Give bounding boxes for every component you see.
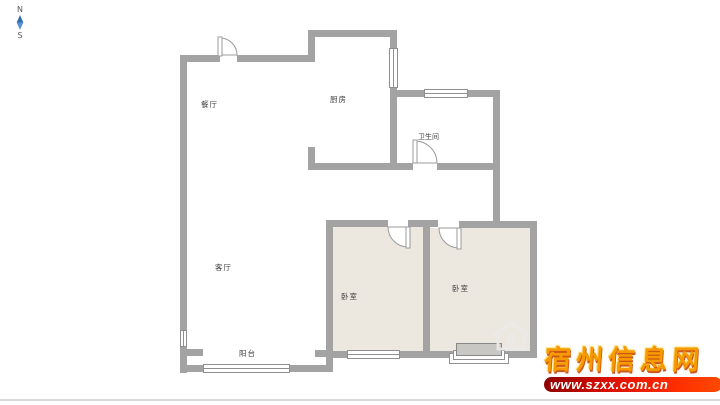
bottom-divider	[0, 399, 720, 401]
bathroom-door-panel	[413, 140, 417, 163]
site-watermark: 宿州信息网 www.szxx.com.cn	[544, 346, 720, 392]
room-label-living: 客厅	[215, 262, 232, 273]
room-label-bedroom-left: 卧室	[341, 291, 358, 302]
entry-door-icon	[220, 38, 237, 55]
entry-door-panel	[218, 37, 222, 56]
room-label-kitchen: 厨房	[330, 94, 347, 105]
site-url: www.szxx.com.cn	[550, 377, 668, 392]
site-url-banner: www.szxx.com.cn	[544, 377, 720, 392]
room-label-balcony: 阳台	[239, 348, 256, 359]
bedroom-right-door-icon	[439, 228, 459, 248]
site-name: 宿州信息网	[543, 346, 720, 376]
bedroom-left-door-panel	[406, 227, 410, 248]
bedroom-left-door-icon	[388, 227, 408, 247]
bathroom-door-icon	[415, 141, 437, 163]
watermark-house-icon	[486, 320, 536, 352]
room-label-dining: 餐厅	[201, 99, 218, 110]
floorplan-canvas: N S	[0, 0, 720, 405]
bedroom-right-door-panel	[457, 228, 461, 249]
room-label-bathroom: 卫生间	[418, 132, 439, 142]
room-label-bedroom-right: 卧室	[452, 283, 469, 294]
